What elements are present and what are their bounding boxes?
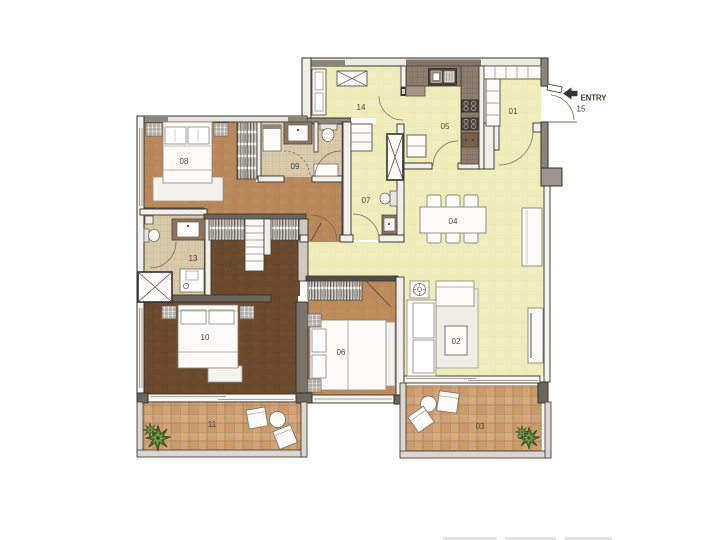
- svg-text:09: 09: [291, 162, 300, 171]
- svg-text:13: 13: [189, 254, 198, 263]
- svg-text:08: 08: [180, 157, 189, 166]
- svg-text:15: 15: [577, 105, 586, 114]
- svg-text:ENTRY: ENTRY: [581, 94, 608, 103]
- svg-text:12: 12: [224, 260, 233, 269]
- svg-text:06: 06: [337, 348, 346, 357]
- svg-text:04: 04: [449, 217, 458, 226]
- svg-text:14: 14: [357, 103, 366, 112]
- svg-text:01: 01: [509, 107, 518, 116]
- svg-text:05: 05: [441, 122, 450, 131]
- svg-text:03: 03: [476, 422, 485, 431]
- svg-text:02: 02: [452, 337, 461, 346]
- svg-text:07: 07: [362, 196, 371, 205]
- svg-text:10: 10: [201, 333, 210, 342]
- svg-text:11: 11: [208, 420, 217, 429]
